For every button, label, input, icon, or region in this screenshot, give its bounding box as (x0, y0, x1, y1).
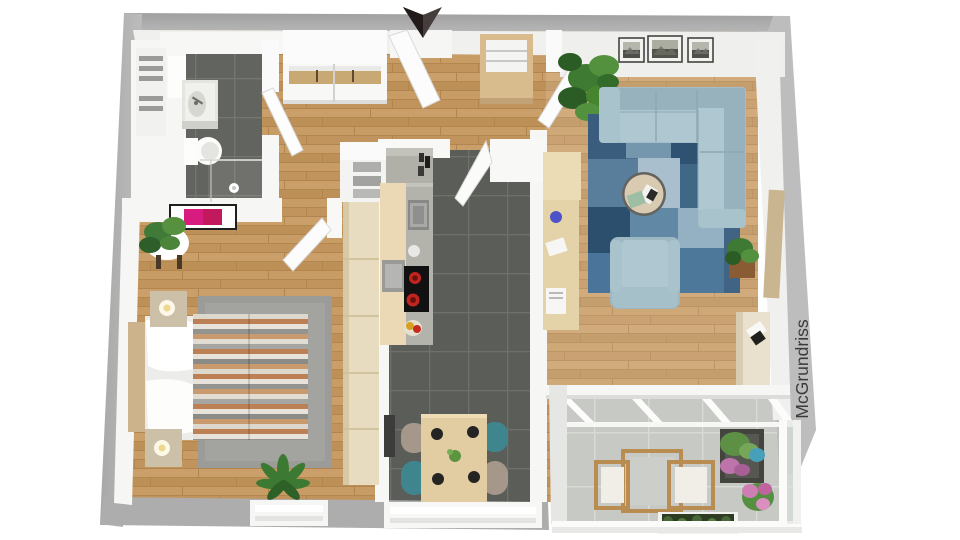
svg-text:McGrundriss: McGrundriss (792, 319, 812, 418)
